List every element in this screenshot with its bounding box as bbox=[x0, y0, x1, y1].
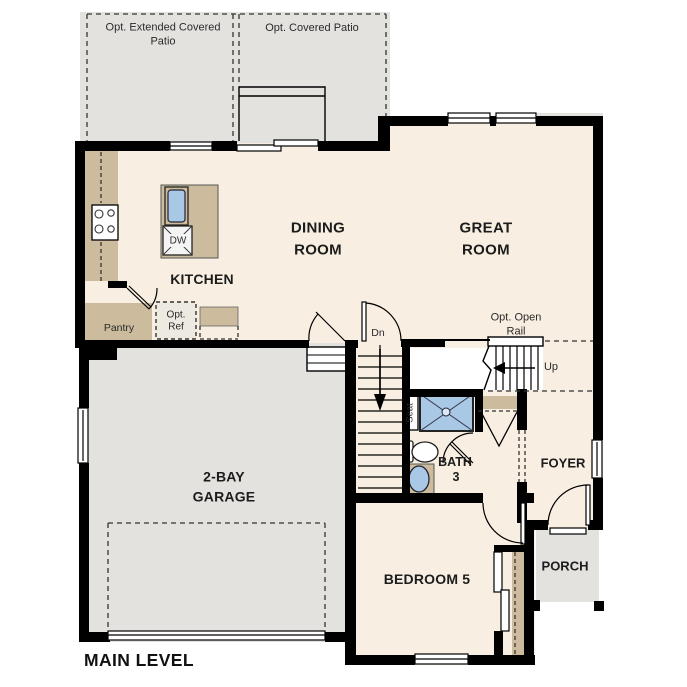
shower-drain bbox=[442, 408, 450, 416]
kitchen-counter-right bbox=[200, 307, 238, 326]
optional-refrigerator-box bbox=[156, 302, 196, 339]
plan-title: MAIN LEVEL bbox=[84, 650, 194, 671]
foyer-closet-shelf bbox=[478, 396, 517, 409]
closet-bypass-door bbox=[494, 552, 502, 592]
floor-plan: Opt. Extended Covered Patio Opt. Covered… bbox=[0, 0, 687, 687]
bedroom-door-leaf bbox=[521, 503, 525, 544]
patio-slider-panel bbox=[274, 140, 318, 146]
garage-steps bbox=[307, 347, 350, 371]
front-door-threshold bbox=[550, 528, 586, 534]
stove bbox=[92, 205, 118, 240]
dishwasher-label-bg bbox=[166, 234, 190, 247]
kitchen-sink bbox=[168, 190, 185, 222]
basement-door-leaf bbox=[362, 302, 366, 341]
toilet-bowl bbox=[412, 442, 438, 462]
floor-plan-drawing bbox=[0, 0, 687, 687]
open-rail-bar bbox=[488, 337, 543, 346]
front-door-leaf bbox=[586, 485, 590, 525]
closet-bypass-door bbox=[501, 590, 509, 631]
porch-floor bbox=[536, 530, 599, 602]
garage-floor bbox=[84, 343, 352, 642]
bath-sink bbox=[409, 466, 429, 492]
patio-floor bbox=[80, 12, 390, 143]
pantry-counter bbox=[85, 303, 152, 340]
